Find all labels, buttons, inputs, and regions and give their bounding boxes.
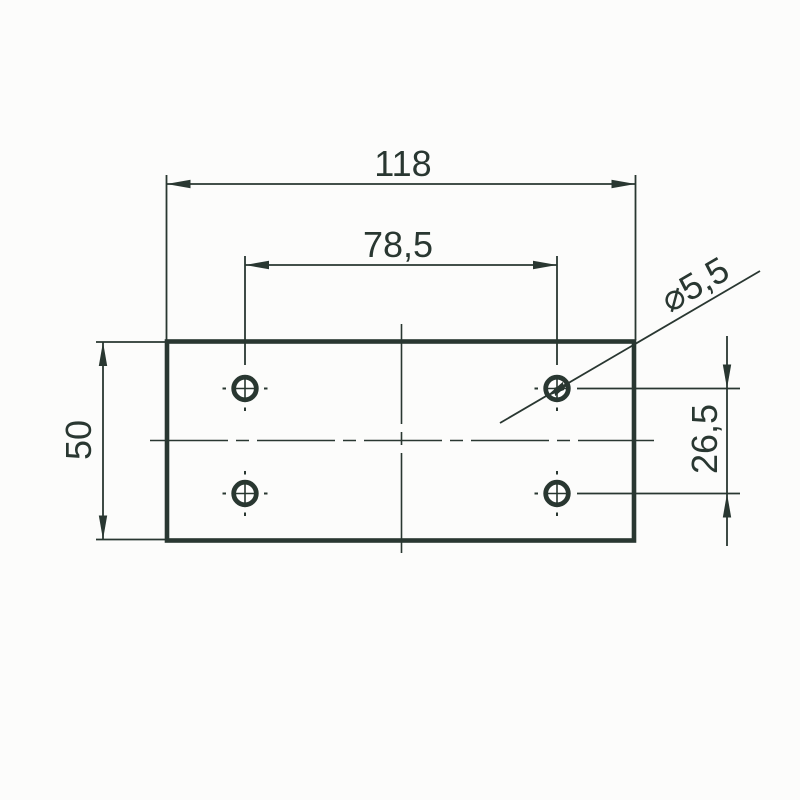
hole-bottom-left [223, 471, 268, 516]
dim-plate-height: 50 [58, 342, 166, 540]
dim-plate-width-label: 118 [374, 143, 431, 184]
dim-hole-spacing-x-label: 78,5 [363, 224, 433, 265]
arrowhead-top [99, 342, 107, 366]
arrowhead-right [533, 261, 557, 269]
hole-bottom-right [535, 471, 571, 516]
arrowhead-bottom [99, 516, 107, 540]
drawing-canvas: 118 78,5 50 26,5 ⌀5,5 [0, 0, 800, 800]
dimension-drawing: 118 78,5 50 26,5 ⌀5,5 [0, 0, 800, 800]
dim-hole-spacing-y-label: 26,5 [684, 404, 725, 474]
arrowhead-left [167, 180, 191, 188]
arrowhead-bottom [723, 494, 731, 518]
leader-line [500, 271, 760, 423]
arrowhead-left [245, 261, 269, 269]
dim-plate-height-label: 50 [58, 420, 99, 460]
hole-top-left [223, 376, 268, 412]
dim-hole-diameter: ⌀5,5 [500, 248, 760, 423]
arrowhead-right [612, 180, 636, 188]
arrowhead-top [723, 365, 731, 389]
